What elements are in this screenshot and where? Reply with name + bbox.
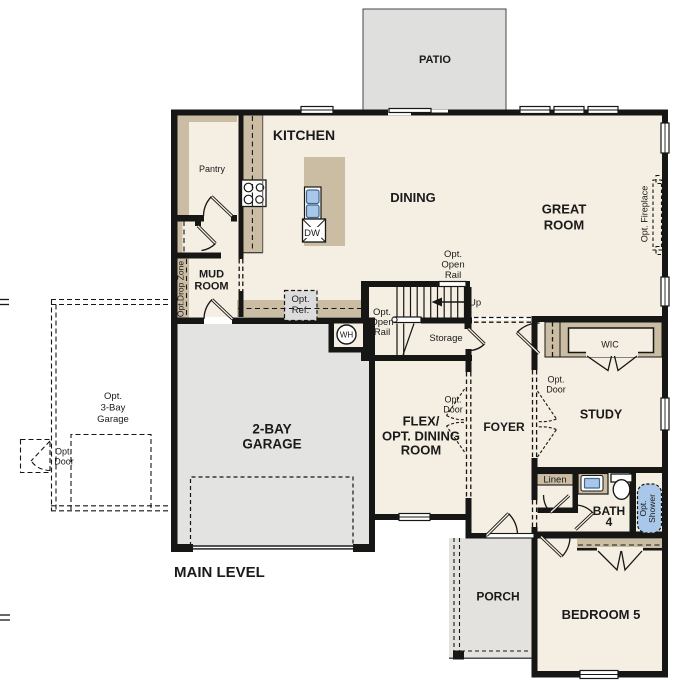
svg-text:Opt.: Opt. bbox=[104, 391, 122, 402]
svg-text:FOYER: FOYER bbox=[483, 420, 525, 434]
svg-text:GARAGE: GARAGE bbox=[242, 437, 301, 452]
svg-text:PATIO: PATIO bbox=[419, 54, 451, 66]
svg-text:Opt.: Opt. bbox=[55, 447, 72, 457]
svg-text:Opt.: Opt. bbox=[444, 395, 461, 405]
svg-text:ROOM: ROOM bbox=[544, 218, 584, 233]
svg-text:BEDROOM 5: BEDROOM 5 bbox=[562, 607, 641, 622]
svg-text:Opt.: Opt. bbox=[292, 294, 310, 305]
svg-text:Ref.: Ref. bbox=[292, 305, 309, 316]
svg-text:Linen: Linen bbox=[543, 475, 566, 486]
svg-text:3-Bay: 3-Bay bbox=[101, 403, 126, 414]
svg-text:2-BAY: 2-BAY bbox=[252, 422, 291, 437]
svg-text:Opt.Drop Zone: Opt.Drop Zone bbox=[176, 261, 186, 317]
svg-text:ROOM: ROOM bbox=[194, 281, 228, 293]
svg-text:KITCHEN: KITCHEN bbox=[273, 127, 335, 143]
svg-text:Door: Door bbox=[546, 385, 566, 395]
svg-text:Open: Open bbox=[441, 260, 464, 271]
svg-text:PORCH: PORCH bbox=[476, 590, 519, 604]
svg-text:FLEX/: FLEX/ bbox=[403, 414, 440, 429]
svg-text:MUD: MUD bbox=[199, 269, 224, 281]
svg-text:MAIN LEVEL: MAIN LEVEL bbox=[174, 564, 265, 581]
svg-text:Storage: Storage bbox=[429, 333, 462, 344]
svg-text:DINING: DINING bbox=[390, 190, 436, 205]
svg-text:WH: WH bbox=[340, 331, 354, 340]
svg-text:OPT. DINING: OPT. DINING bbox=[382, 429, 460, 444]
svg-text:Up: Up bbox=[469, 298, 481, 309]
svg-text:STUDY: STUDY bbox=[580, 408, 623, 422]
svg-text:ROOM: ROOM bbox=[401, 443, 441, 458]
svg-text:Opt.: Opt. bbox=[547, 375, 564, 385]
svg-text:Opt. Fireplace: Opt. Fireplace bbox=[640, 186, 650, 243]
svg-text:Door: Door bbox=[443, 405, 463, 415]
svg-text:Rail: Rail bbox=[445, 270, 461, 281]
svg-text:GREAT: GREAT bbox=[542, 202, 587, 217]
svg-text:Garage: Garage bbox=[97, 414, 129, 425]
svg-text:Opt.: Opt. bbox=[444, 249, 462, 260]
svg-text:4: 4 bbox=[606, 515, 613, 529]
svg-text:DW: DW bbox=[304, 228, 320, 239]
svg-text:Pantry: Pantry bbox=[199, 164, 226, 174]
svg-text:Rail: Rail bbox=[374, 327, 390, 338]
svg-text:Door: Door bbox=[54, 457, 74, 467]
svg-text:WIC: WIC bbox=[601, 340, 619, 350]
svg-text:Shower: Shower bbox=[647, 494, 657, 523]
